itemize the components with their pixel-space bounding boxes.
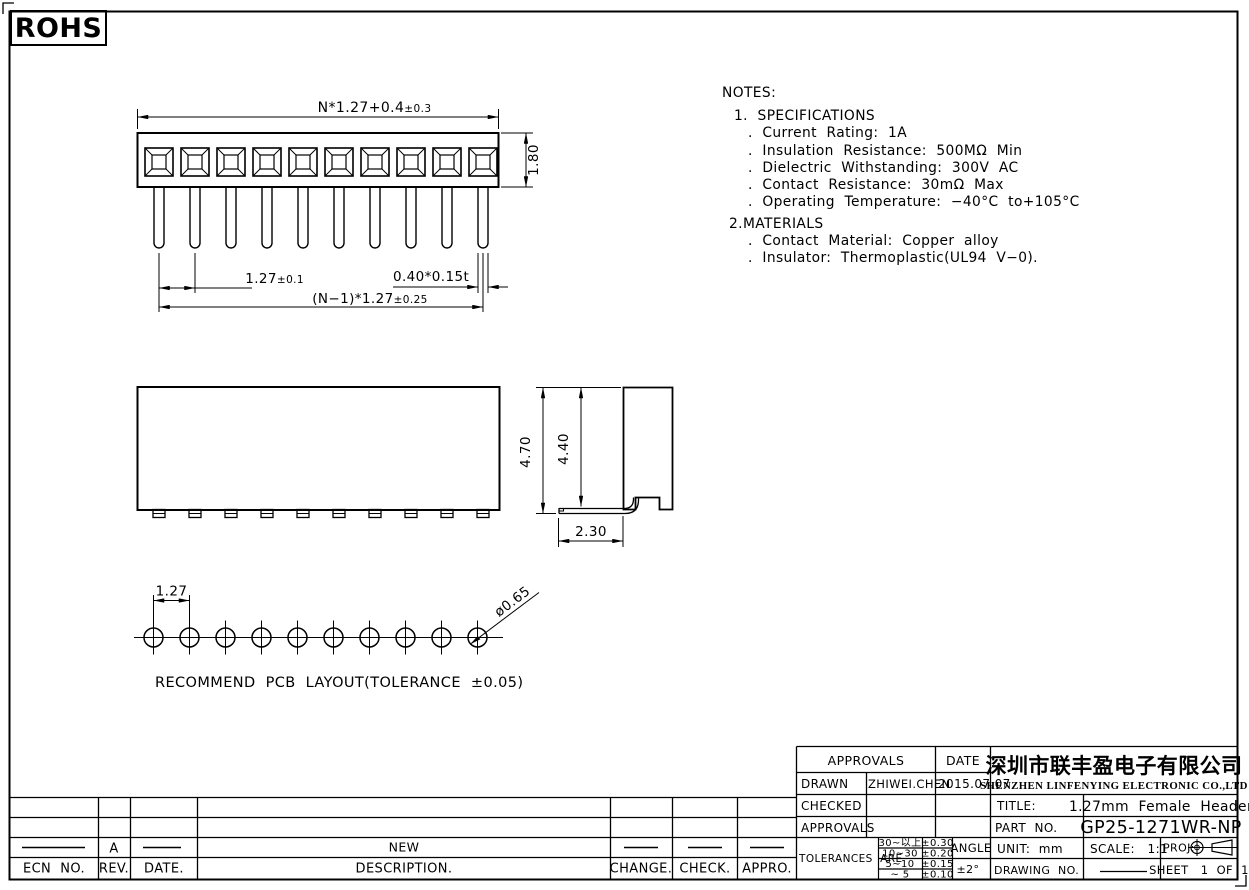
drawing-sheet: ROHS N*1.27+0.4±0.3 <box>0 0 1249 890</box>
tolerance-range: 5~10 <box>885 859 914 870</box>
drawing-no-label: DRAWING NO. <box>994 864 1079 877</box>
dim-height-label: 1.80 <box>526 144 542 176</box>
revision-description-value: NEW <box>389 840 420 855</box>
dim-body-height-side: 4.40 <box>556 388 581 507</box>
checked-label: CHECKED <box>801 799 862 813</box>
dim-lead-label: 2.30 <box>575 524 607 540</box>
dim-lead-length: 2.30 <box>559 516 624 547</box>
dim-overall-width: N*1.27+0.4±0.3 <box>138 100 499 129</box>
dim-hole-pitch-label: 1.27 <box>156 584 188 600</box>
dim-pin-label: 0.40*0.15t <box>393 269 469 285</box>
notes-line: . Contact Resistance: 30mΩ Max <box>748 177 1004 193</box>
pcb-layout-caption: RECOMMEND PCB LAYOUT(TOLERANCE ±0.05) <box>155 675 523 691</box>
scale-label: SCALE: 1:1 <box>1090 842 1168 856</box>
revision-header-rev: REV. <box>99 862 129 877</box>
notes-line: . Insulator: Thermoplastic(UL94 V−0). <box>748 250 1038 266</box>
dim-pitch-tol: ±0.1 <box>277 274 304 286</box>
smt-lead-inner <box>559 498 634 509</box>
approvals-header: APPROVALS <box>828 753 905 768</box>
unit-label: UNIT: mm <box>997 842 1063 856</box>
rohs-logo: ROHS <box>11 11 106 45</box>
svg-text:(N−1)*1.27±0.25: (N−1)*1.27±0.25 <box>270 291 461 307</box>
smt-lead-outer <box>559 498 639 514</box>
title-value: 1.27mm Female Header <box>1069 799 1249 815</box>
dim-body-label: 4.40 <box>556 433 572 465</box>
tolerance-value: ±0.30 <box>921 838 954 849</box>
tolerance-range: 10~30 <box>882 849 918 860</box>
revision-header-ecn: ECN NO. <box>23 862 85 877</box>
notes-line: . Operating Temperature: −40°C to+105°C <box>748 194 1080 210</box>
dim-overall-tol: ±0.3 <box>404 103 431 115</box>
svg-text:1.27±0.1: 1.27±0.1 <box>203 271 337 287</box>
tolerance-value: ±0.10 <box>921 870 954 881</box>
revision-table: A NEW ECN NO. REV. DATE. DESCRIPTION. CH… <box>10 798 797 880</box>
tolerance-range: ~ 5 <box>890 870 909 881</box>
angle-label: ANGLE <box>950 841 991 855</box>
dim-total-label: 4.70 <box>518 436 534 468</box>
drawn-label: DRAWN <box>801 777 849 791</box>
revision-header-check: CHECK. <box>679 862 730 877</box>
company-name-en: SHENZHEN LINFENYING ELECTRONIC CO.,LTD <box>980 780 1248 792</box>
title-label: TITLE: <box>996 799 1036 813</box>
top-view-drawing: N*1.27+0.4±0.3 1.80 1.27±0.1 (N−1)*1.27 <box>138 100 543 312</box>
revision-header-date: DATE. <box>144 862 184 877</box>
notes-title: NOTES: <box>722 85 776 101</box>
tolerance-value: ±0.15 <box>921 859 954 870</box>
notes-line: . Current Rating: 1A <box>748 125 907 141</box>
rohs-logo-text: ROHS <box>15 13 102 44</box>
notes: NOTES: 1. SPECIFICATIONS . Current Ratin… <box>722 85 1080 266</box>
dim-pitch-label: 1.27 <box>245 271 277 287</box>
dim-hole-pitch: 1.27 <box>154 584 190 625</box>
pcb-layout-drawing: 1.27 ø0.65 RECOMMEND PCB LAYOUT(TOLERANC… <box>134 583 539 691</box>
pin-row <box>154 187 488 248</box>
dim-overall-label: N*1.27+0.4 <box>318 100 405 116</box>
dim-span-label: (N−1)*1.27 <box>312 291 393 307</box>
socket-row <box>145 148 497 176</box>
part-no-label: PART NO. <box>995 821 1057 835</box>
revision-header-appro: APPRO. <box>742 862 792 877</box>
sheet-label: SHEET 1 OF 1 <box>1149 863 1249 877</box>
notes-line: . Dielectric Withstanding: 300V AC <box>748 160 1019 176</box>
approvals-row-label: APPROVALS <box>801 821 875 835</box>
notes-line: . Insulation Resistance: 500MΩ Min <box>748 143 1022 159</box>
side-view-drawing: 4.70 4.40 2.30 <box>518 388 673 548</box>
projection-symbol-icon <box>1188 839 1237 856</box>
revision-rev-value: A <box>109 842 118 857</box>
svg-text:N*1.27+0.4±0.3: N*1.27+0.4±0.3 <box>274 100 465 116</box>
tolerance-value: ±0.20 <box>921 849 954 860</box>
date-header: DATE <box>946 753 980 768</box>
revision-header-description: DESCRIPTION. <box>356 862 453 877</box>
part-no-value: GP25-1271WR-NP <box>1080 818 1242 838</box>
notes-line: 2.MATERIALS <box>729 216 824 232</box>
company-name-cn: 深圳市联丰盈电子有限公司 <box>986 754 1243 778</box>
dim-body-height: 1.80 <box>501 133 542 187</box>
angle-value: ±2° <box>957 863 980 876</box>
notes-line: . Contact Material: Copper alloy <box>748 233 999 249</box>
tolerance-range: 30~以上 <box>878 837 921 849</box>
dim-pin-size: 0.40*0.15t <box>393 253 508 293</box>
revision-header-change: CHANGE. <box>610 862 673 877</box>
dim-hole-diameter: ø0.65 <box>471 583 540 644</box>
front-view-drawing <box>138 387 500 518</box>
notes-line: 1. SPECIFICATIONS <box>734 108 875 124</box>
dim-span-tol: ±0.25 <box>394 294 428 306</box>
title-block: APPROVALS DATE DRAWN ZHIWEI.CHEN 2015.07… <box>797 747 1249 881</box>
